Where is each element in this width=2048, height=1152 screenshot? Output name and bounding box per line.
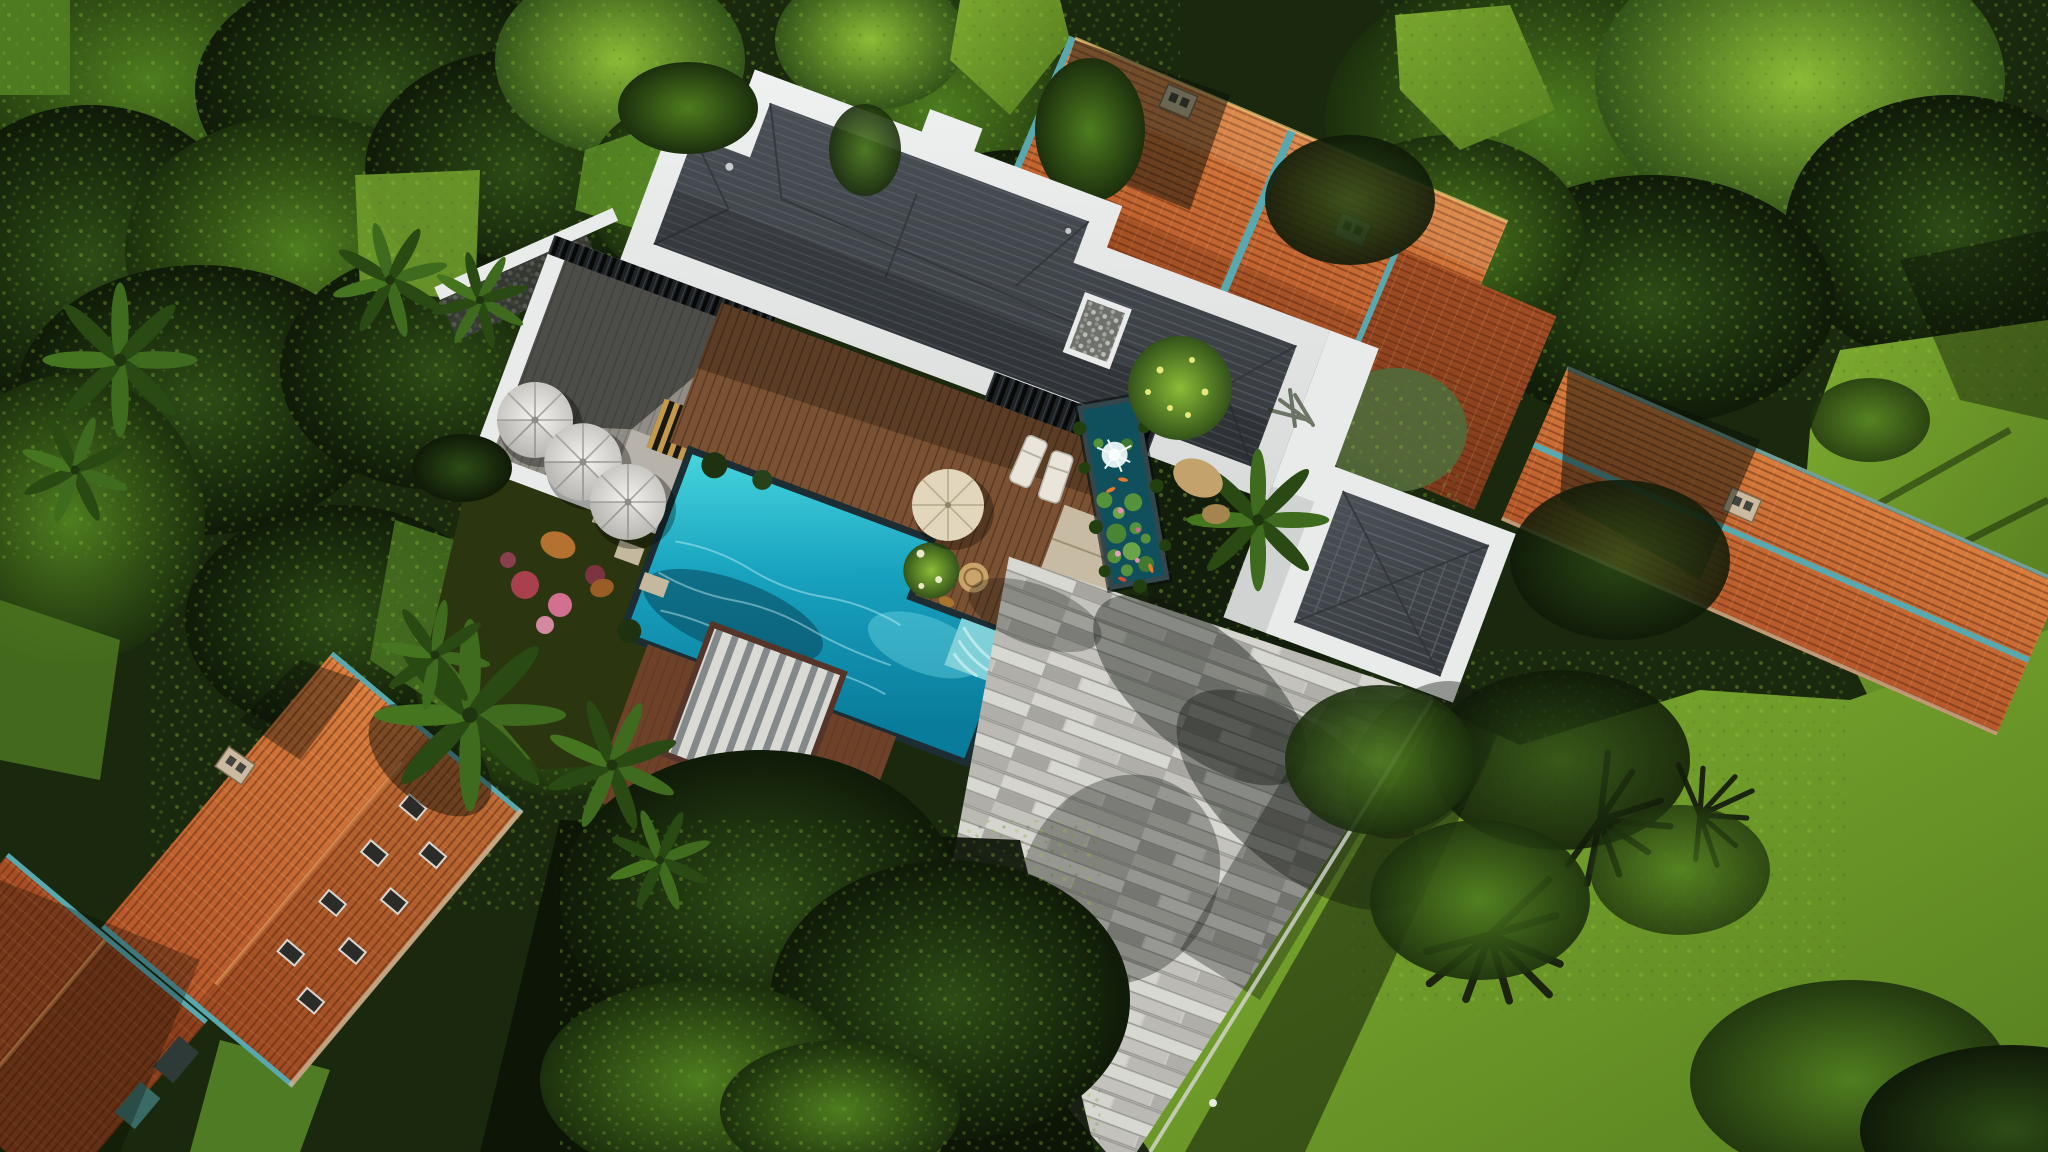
tree-over-roof <box>1510 480 1730 640</box>
tree-over-terrace <box>412 434 512 502</box>
lawn-ball <box>1209 1099 1217 1107</box>
flowering-tree <box>1128 336 1232 440</box>
rock <box>1202 504 1230 524</box>
palm-tree <box>43 283 198 438</box>
tree-over-villa <box>829 104 901 196</box>
tree-over-roof <box>1265 135 1435 265</box>
tree-over-villa <box>618 62 758 154</box>
aerial-villa-render <box>0 0 2048 1152</box>
scene-canvas <box>0 0 2048 1152</box>
